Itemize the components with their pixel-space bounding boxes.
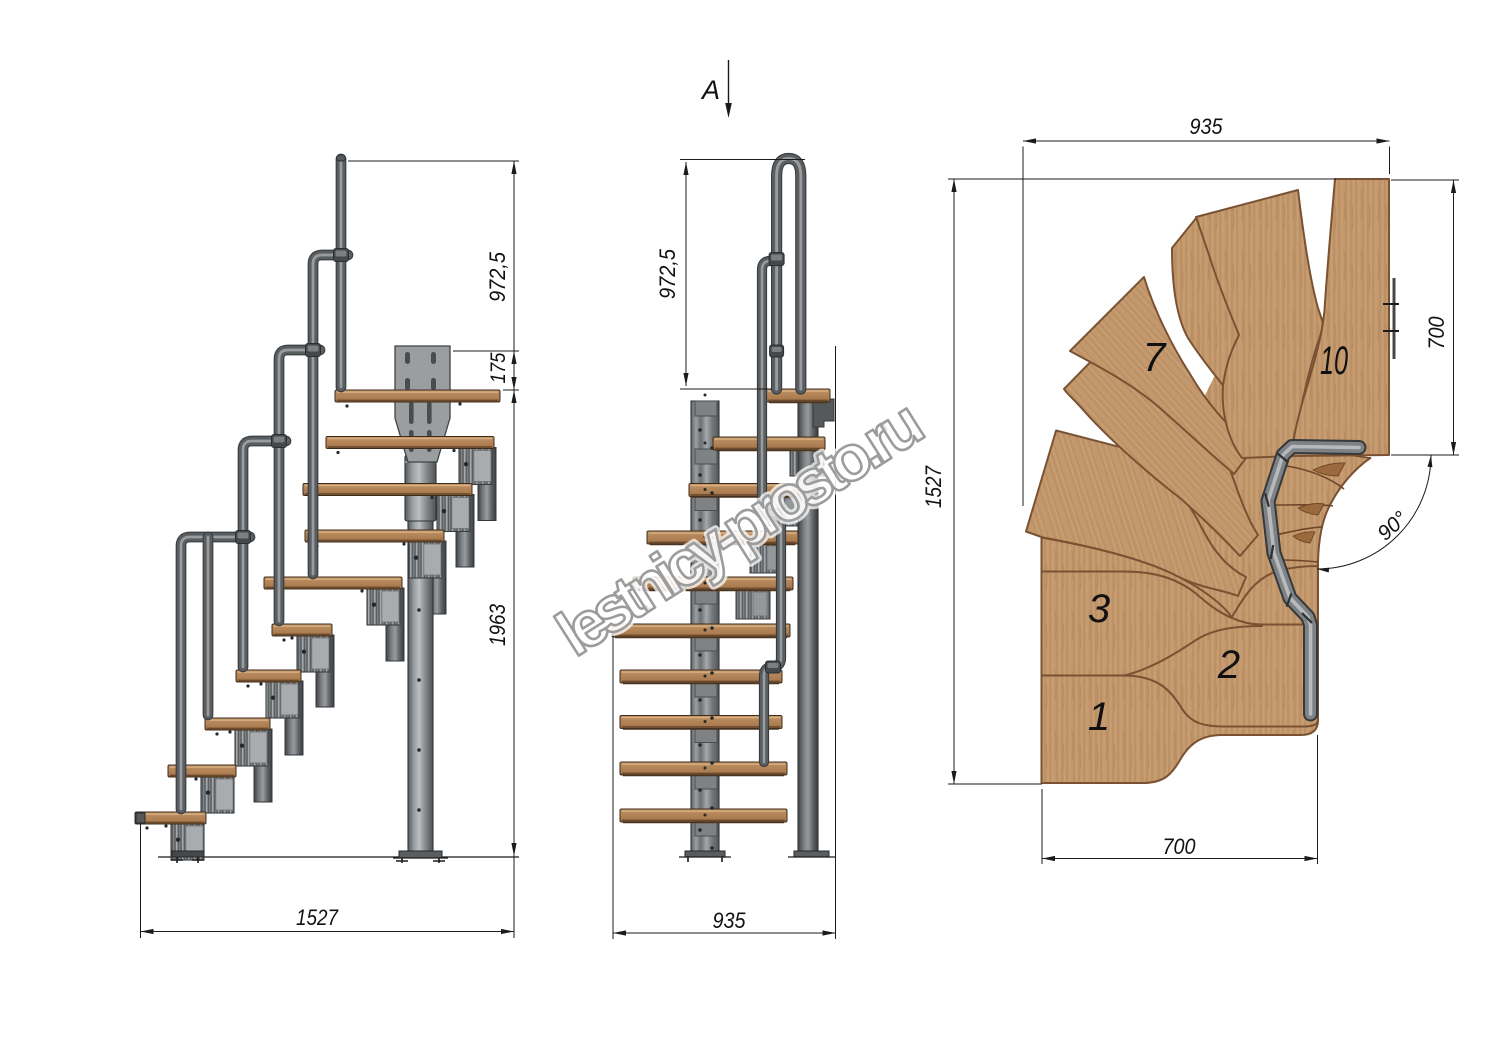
svg-text:972,5: 972,5 [485,251,510,302]
svg-text:175: 175 [487,352,510,383]
svg-text:700: 700 [1424,316,1449,350]
svg-text:935: 935 [713,908,747,933]
svg-text:1527: 1527 [921,465,946,508]
svg-text:10: 10 [1320,339,1348,383]
svg-text:1: 1 [1088,695,1110,739]
svg-text:972,5: 972,5 [655,248,680,299]
svg-text:1963: 1963 [485,603,510,646]
svg-text:7: 7 [1143,334,1168,380]
svg-text:2: 2 [1217,643,1240,687]
svg-text:935: 935 [1190,114,1224,139]
svg-text:3: 3 [1088,587,1110,631]
svg-text:1527: 1527 [296,905,339,930]
svg-text:700: 700 [1163,834,1197,859]
svg-text:A: A [700,75,720,105]
